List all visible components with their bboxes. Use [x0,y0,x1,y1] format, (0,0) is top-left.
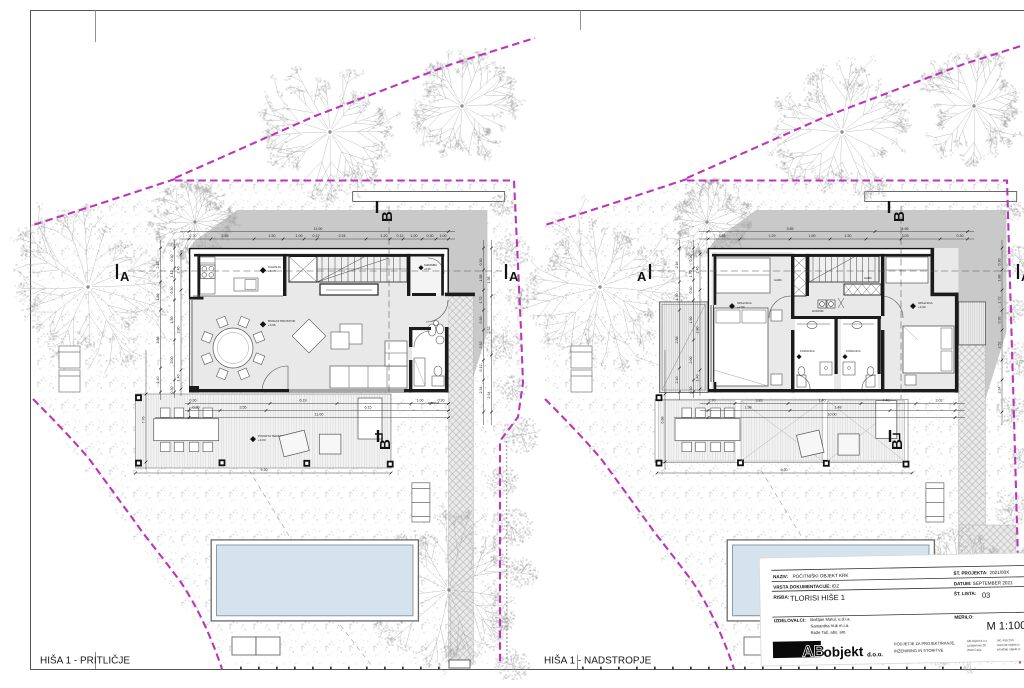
svg-text:0.30: 0.30 [170,255,174,262]
svg-text:B: B [889,439,906,450]
svg-text:HIŠA 1 - NADSTROPJE: HIŠA 1 - NADSTROPJE [544,654,652,667]
svg-text:1.00: 1.00 [440,234,447,238]
svg-text:03: 03 [982,591,991,600]
svg-text:0.30: 0.30 [689,255,693,262]
svg-text:6.15: 6.15 [365,406,372,410]
svg-text:+0.05: +0.05 [424,267,431,271]
svg-text:IZDELOVALCI:: IZDELOVALCI: [774,618,806,624]
svg-text:POČITNIŠKI OBJEKT KRK: POČITNIŠKI OBJEKT KRK [792,572,849,579]
svg-text:2.52: 2.52 [487,327,491,334]
svg-text:TLORISI HIŠE 1: TLORISI HIŠE 1 [790,593,845,603]
svg-text:0.30: 0.30 [170,387,174,394]
svg-text:0.30: 0.30 [170,287,174,294]
svg-text:3.83: 3.83 [756,399,763,403]
svg-text:1.40: 1.40 [819,399,826,403]
svg-text:d.o.o.: d.o.o. [867,652,883,658]
svg-text:0.30: 0.30 [998,259,1002,266]
svg-text:GARD.: GARD. [774,278,782,282]
svg-text:1.88: 1.88 [998,275,1002,282]
svg-text:0.30: 0.30 [689,387,693,394]
svg-text:1.88: 1.88 [479,275,483,282]
svg-text:2.40: 2.40 [156,377,160,384]
svg-text:0.30: 0.30 [193,406,200,410]
svg-text:B: B [891,211,908,222]
svg-text:Samantha Vuk m.i.a.: Samantha Vuk m.i.a. [810,623,849,629]
svg-text:0.12: 0.12 [479,365,483,372]
svg-text:2.46: 2.46 [696,267,700,274]
svg-text:3.03: 3.03 [902,234,909,238]
svg-text:1.50: 1.50 [845,234,852,238]
svg-text:2.16: 2.16 [675,262,679,269]
svg-text:0.30: 0.30 [190,399,197,403]
svg-text:A: A [637,269,647,284]
svg-text:2.88: 2.88 [675,337,679,344]
svg-text:GARD.: GARD. [864,276,872,280]
svg-text:1.40: 1.40 [696,375,700,382]
svg-text:2.40: 2.40 [675,377,679,384]
svg-text:1.00: 1.00 [296,234,303,238]
svg-text:2021/00X: 2021/00X [989,570,1009,575]
svg-text:7.40: 7.40 [883,399,890,403]
svg-text:+2.90: +2.90 [737,305,745,309]
svg-text:HIŠA 1 - PRITLIČJE: HIŠA 1 - PRITLIČJE [40,654,130,667]
svg-text:11.00: 11.00 [315,413,324,417]
svg-text:2.70: 2.70 [709,399,716,403]
svg-text:3.85: 3.85 [787,227,794,231]
svg-text:Rože Taš, abs. am.: Rože Taš, abs. am. [811,629,847,635]
svg-text:0.30: 0.30 [998,317,1002,324]
svg-text:2.46: 2.46 [177,267,181,274]
svg-text:2.16: 2.16 [156,262,160,269]
svg-text:1.29: 1.29 [769,234,776,238]
svg-text:2.00: 2.00 [170,357,174,364]
svg-text:10.00: 10.00 [828,413,837,417]
svg-text:0.12: 0.12 [397,234,404,238]
svg-text:9.30: 9.30 [261,468,268,472]
svg-text:1.98: 1.98 [487,277,491,284]
svg-text:0.30: 0.30 [957,234,964,238]
svg-text:4.95: 4.95 [902,227,909,231]
svg-text:2.88: 2.88 [156,337,160,344]
svg-text:HODNIK: HODNIK [812,309,824,313]
svg-text:0.12: 0.12 [313,234,320,238]
svg-text:1.40: 1.40 [177,375,181,382]
svg-text:1.50: 1.50 [269,234,276,238]
svg-text:2.65: 2.65 [222,234,229,238]
svg-text:0.30: 0.30 [479,317,483,324]
svg-text:3.03: 3.03 [936,399,943,403]
svg-text:+2.90: +2.90 [918,305,926,309]
svg-text:1.98: 1.98 [745,406,752,410]
svg-text:2.34: 2.34 [487,392,491,399]
svg-text:2.34: 2.34 [998,387,1002,394]
svg-text:3.85: 3.85 [719,234,726,238]
svg-text:SHRAMBA: SHRAMBA [424,263,437,267]
svg-text:1.30: 1.30 [156,294,160,301]
svg-text:+0.05: +0.05 [268,323,276,327]
svg-text:info@ab-objekt.si: info@ab-objekt.si [997,647,1021,651]
svg-text:B: B [379,211,396,222]
svg-text:KOPALNICA: KOPALNICA [846,349,861,353]
svg-text:1.00: 1.00 [411,234,418,238]
svg-text:2.34: 2.34 [479,387,483,394]
svg-text:1.12: 1.12 [170,271,174,278]
svg-text:1.48: 1.48 [835,406,842,410]
svg-text:M 1:100: M 1:100 [986,620,1024,633]
svg-text:2000 Celje: 2000 Celje [967,648,982,652]
svg-text:KOPALNICA: KOPALNICA [800,349,815,353]
svg-text:NAZIV:: NAZIV: [773,574,789,579]
svg-text:2.80: 2.80 [177,327,181,334]
svg-text:2.80: 2.80 [696,327,700,334]
svg-text:+0.00: +0.00 [258,438,266,442]
svg-text:1.00: 1.00 [417,399,424,403]
svg-text:MERILO:: MERILO: [954,614,974,619]
svg-text:IDZ: IDZ [832,584,840,589]
svg-text:0.30: 0.30 [427,234,434,238]
svg-text:2.52: 2.52 [998,342,1002,349]
svg-text:DATUM:: DATUM: [954,581,972,586]
svg-text:2.00: 2.00 [689,357,693,364]
svg-text:INŽENIRING IN STORITVE: INŽENIRING IN STORITVE [894,648,944,654]
svg-text:1.50: 1.50 [809,234,816,238]
svg-text:1.70: 1.70 [689,271,693,278]
svg-text:SEPTEMBER 2021: SEPTEMBER 2021 [973,580,1013,586]
svg-text:1.50: 1.50 [689,317,693,324]
svg-text:1.72: 1.72 [998,297,1002,304]
svg-text:6.88: 6.88 [661,417,665,424]
svg-text:3.55: 3.55 [240,406,247,410]
svg-text:Boštjan Matul, u.d.i.a.: Boštjan Matul, u.d.i.a. [810,616,850,622]
svg-text:RISBA:: RISBA: [773,594,789,599]
svg-text:0.30: 0.30 [438,399,445,403]
svg-text:AB: AB [802,643,825,660]
svg-text:2.24: 2.24 [339,234,346,238]
svg-text:0.30: 0.30 [479,259,483,266]
svg-text:7.76: 7.76 [142,417,146,424]
svg-text:1.72: 1.72 [479,297,483,304]
svg-text:objekt: objekt [823,644,864,660]
svg-text:1.30: 1.30 [675,294,679,301]
svg-text:1.20: 1.20 [381,234,388,238]
svg-text:1.50: 1.50 [170,317,174,324]
svg-text:B: B [377,439,394,450]
svg-text:2.70: 2.70 [190,234,197,238]
svg-text:11.00: 11.00 [314,227,323,231]
svg-text:9.30: 9.30 [781,468,788,472]
svg-text:0.30: 0.30 [689,287,693,294]
svg-text:2.52: 2.52 [479,342,483,349]
svg-text:6.19: 6.19 [300,399,307,403]
